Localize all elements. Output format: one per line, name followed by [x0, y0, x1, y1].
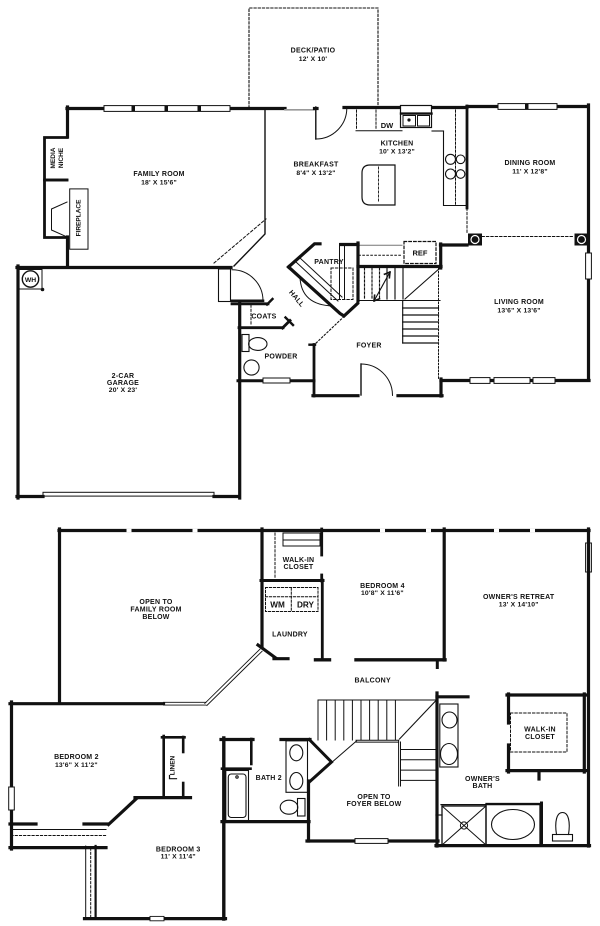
svg-text:8'4" X 13'2": 8'4" X 13'2"	[296, 170, 335, 177]
svg-text:12' X 10': 12' X 10'	[299, 56, 328, 63]
svg-text:10' X 13'2": 10' X 13'2"	[379, 149, 415, 156]
svg-text:OPEN TO: OPEN TO	[139, 599, 172, 606]
svg-text:FAMILY ROOM: FAMILY ROOM	[133, 171, 184, 178]
svg-text:NICHE: NICHE	[58, 147, 65, 168]
svg-text:13' X 14'10": 13' X 14'10"	[499, 601, 539, 608]
svg-text:10'8" X 11'6": 10'8" X 11'6"	[361, 590, 404, 597]
svg-text:BREAKFAST: BREAKFAST	[293, 161, 339, 168]
svg-text:FAMILY ROOM: FAMILY ROOM	[130, 607, 181, 614]
svg-text:BATH: BATH	[473, 783, 493, 790]
svg-text:WALK-IN: WALK-IN	[524, 727, 556, 734]
svg-text:FOYER: FOYER	[356, 342, 381, 349]
svg-text:BEDROOM 2: BEDROOM 2	[54, 754, 99, 761]
svg-text:POWDER: POWDER	[265, 353, 298, 360]
svg-text:18' X 15'6": 18' X 15'6"	[141, 180, 177, 187]
svg-text:FOYER BELOW: FOYER BELOW	[347, 801, 402, 808]
svg-text:13'6" X 11'2": 13'6" X 11'2"	[55, 762, 98, 769]
svg-text:DINING ROOM: DINING ROOM	[505, 160, 556, 167]
svg-text:LINEN: LINEN	[170, 755, 177, 775]
svg-text:13'6" X 13'6": 13'6" X 13'6"	[497, 308, 540, 315]
svg-text:DRY: DRY	[297, 600, 315, 609]
svg-text:WM: WM	[270, 600, 285, 609]
svg-text:CLOSET: CLOSET	[284, 564, 314, 571]
svg-text:FIREPLACE: FIREPLACE	[76, 199, 83, 237]
svg-text:BATH 2: BATH 2	[256, 775, 282, 782]
svg-text:MEDIA: MEDIA	[50, 147, 57, 168]
svg-text:BELOW: BELOW	[142, 614, 169, 621]
svg-text:REF: REF	[413, 249, 428, 258]
svg-text:20' X 23': 20' X 23'	[109, 387, 138, 394]
svg-text:DW: DW	[381, 121, 394, 130]
svg-text:COATS: COATS	[251, 314, 276, 321]
svg-text:WH: WH	[25, 277, 36, 284]
svg-text:DECK/PATIO: DECK/PATIO	[291, 48, 336, 55]
svg-text:OWNER'S RETREAT: OWNER'S RETREAT	[483, 594, 555, 601]
svg-text:PANTRY: PANTRY	[314, 259, 344, 266]
svg-text:KITCHEN: KITCHEN	[381, 140, 414, 147]
svg-text:WALK-IN: WALK-IN	[283, 557, 315, 564]
svg-text:11' X 12'8": 11' X 12'8"	[512, 169, 548, 176]
svg-text:CLOSET: CLOSET	[525, 734, 555, 741]
svg-text:BALCONY: BALCONY	[355, 677, 391, 684]
svg-text:LIVING ROOM: LIVING ROOM	[494, 299, 544, 306]
svg-text:LAUNDRY: LAUNDRY	[272, 631, 308, 638]
svg-text:2-CAR: 2-CAR	[112, 373, 135, 380]
svg-text:GARAGE: GARAGE	[107, 380, 139, 387]
svg-text:11' X 11'4": 11' X 11'4"	[161, 853, 196, 860]
